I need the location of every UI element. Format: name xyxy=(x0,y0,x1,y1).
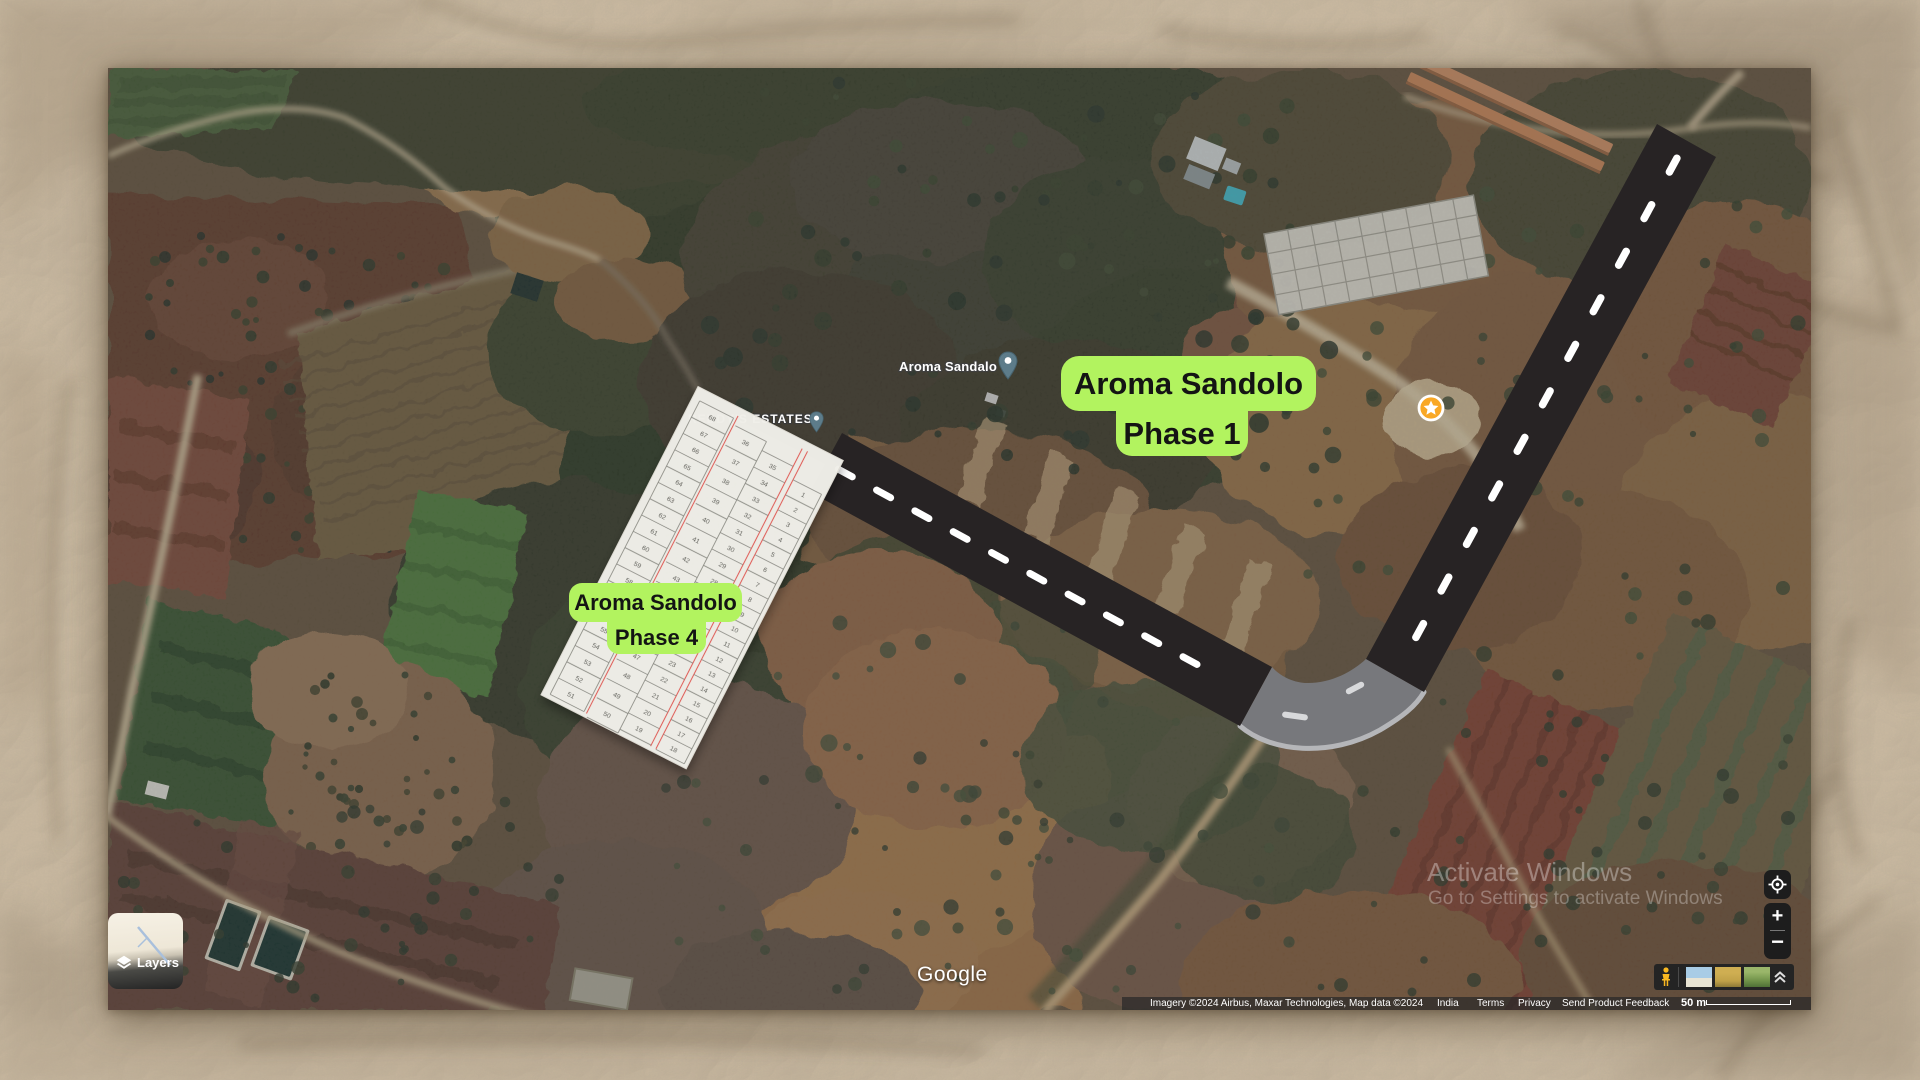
svg-text:Aroma Sandalo: Aroma Sandalo xyxy=(899,359,997,374)
